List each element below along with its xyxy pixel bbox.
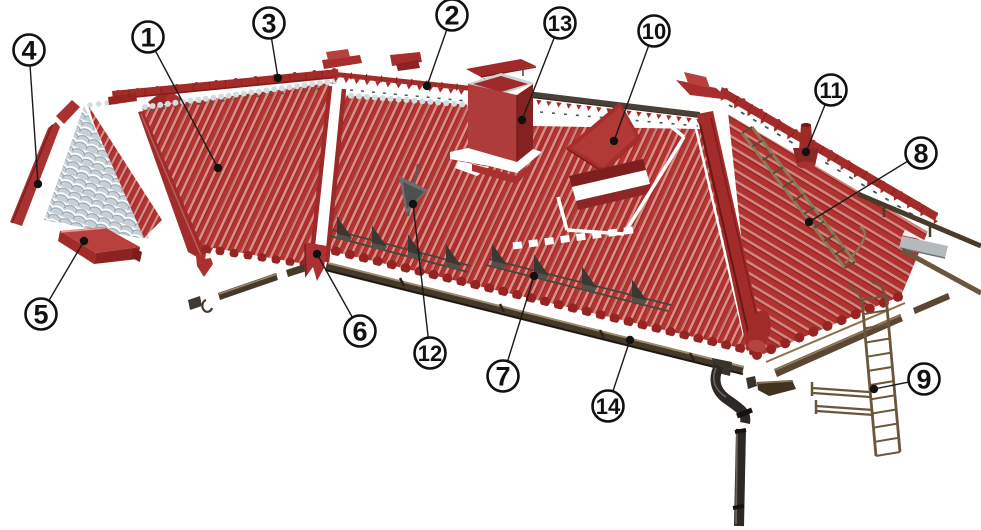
svg-text:10: 10: [642, 19, 666, 44]
svg-text:11: 11: [819, 78, 842, 103]
svg-text:3: 3: [261, 9, 276, 39]
svg-text:9: 9: [916, 365, 931, 395]
svg-text:14: 14: [596, 394, 621, 419]
svg-text:5: 5: [33, 300, 48, 330]
svg-text:4: 4: [21, 36, 36, 66]
svg-text:8: 8: [913, 139, 928, 169]
svg-text:1: 1: [140, 23, 155, 53]
svg-text:7: 7: [495, 362, 510, 392]
svg-text:2: 2: [444, 1, 459, 31]
svg-text:6: 6: [352, 317, 367, 347]
svg-text:13: 13: [548, 11, 572, 36]
svg-text:12: 12: [418, 341, 442, 366]
